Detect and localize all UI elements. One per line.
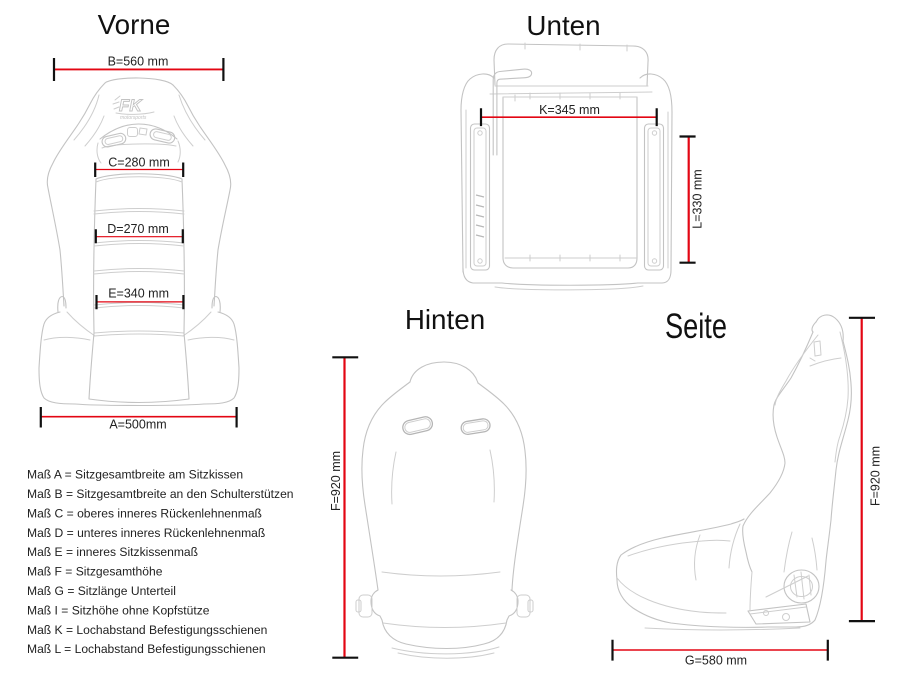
svg-text:Maß C = oberes inneres Rückenl: Maß C = oberes inneres Rückenlehnenmaß — [27, 506, 262, 520]
svg-text:E=340 mm: E=340 mm — [108, 287, 169, 301]
svg-text:Maß E = inneres Sitzkissenmaß: Maß E = inneres Sitzkissenmaß — [27, 545, 198, 559]
svg-text:motorsports: motorsports — [120, 115, 147, 121]
svg-text:F=920 mm: F=920 mm — [869, 446, 883, 506]
svg-text:B=560 mm: B=560 mm — [108, 55, 169, 69]
svg-text:Maß L = Lochabstand Befestigun: Maß L = Lochabstand Befestigungsschienen — [27, 642, 266, 656]
svg-text:FK: FK — [119, 96, 143, 115]
svg-text:Maß B = Sitzgesamtbreite an de: Maß B = Sitzgesamtbreite an den Schulter… — [27, 487, 294, 501]
svg-text:Unten: Unten — [526, 10, 600, 41]
svg-text:Maß F = Sitzgesamthöhe: Maß F = Sitzgesamthöhe — [27, 565, 163, 579]
svg-text:F=920 mm: F=920 mm — [329, 451, 343, 511]
svg-text:D=270 mm: D=270 mm — [107, 222, 168, 236]
svg-text:Maß D = unteres inneres Rücken: Maß D = unteres inneres Rückenlehnenmaß — [27, 526, 265, 540]
svg-text:Hinten: Hinten — [405, 304, 485, 335]
svg-text:Vorne: Vorne — [98, 9, 171, 40]
svg-text:A=500mm: A=500mm — [109, 418, 166, 432]
svg-text:K=345 mm: K=345 mm — [539, 103, 600, 117]
svg-text:Maß K = Lochabstand Befestigun: Maß K = Lochabstand Befestigungsschienen — [27, 623, 267, 637]
svg-text:G=580 mm: G=580 mm — [685, 654, 747, 668]
svg-text:Maß G = Sitzlänge Unterteil: Maß G = Sitzlänge Unterteil — [27, 584, 176, 598]
svg-text:Seite: Seite — [665, 307, 727, 346]
svg-text:L=330 mm: L=330 mm — [691, 169, 705, 228]
svg-text:C=280 mm: C=280 mm — [108, 156, 169, 170]
svg-text:Maß I = Sitzhöhe ohne Kopfstüt: Maß I = Sitzhöhe ohne Kopfstütze — [27, 603, 210, 617]
svg-text:Maß A = Sitzgesamtbreite am Si: Maß A = Sitzgesamtbreite am Sitzkissen — [27, 468, 243, 482]
